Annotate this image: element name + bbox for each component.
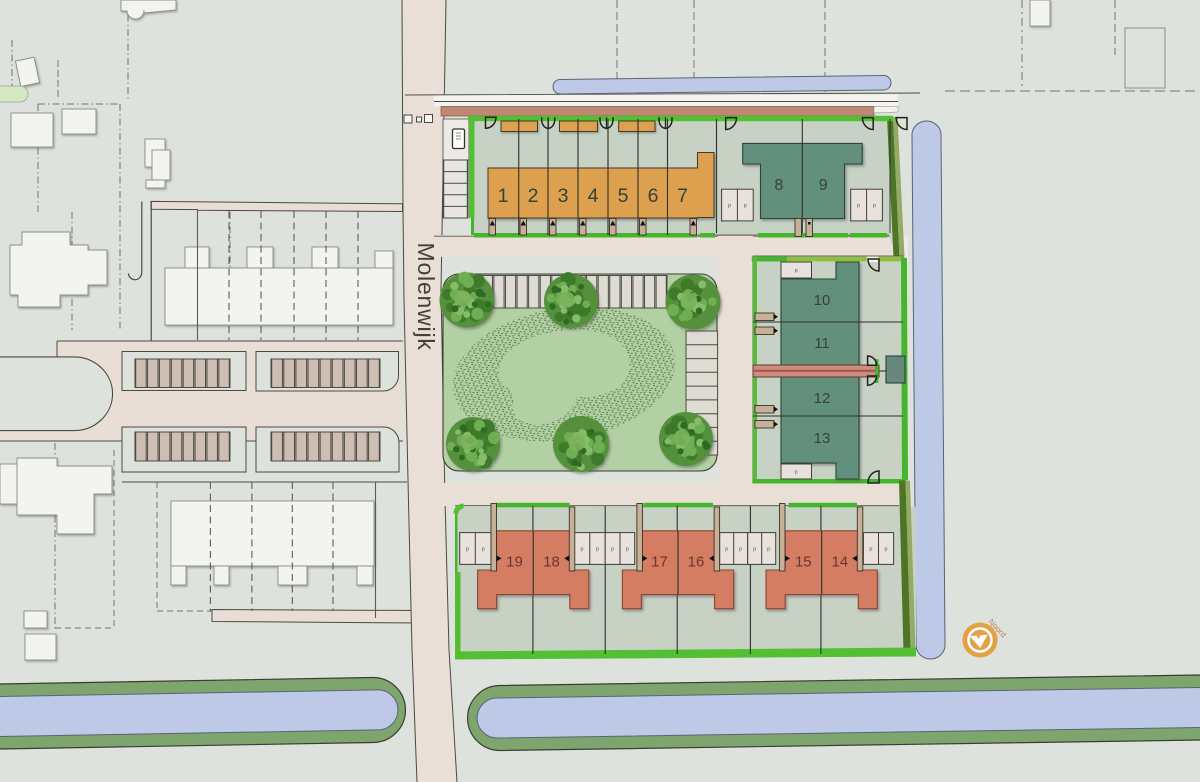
svg-text:6: 6: [648, 185, 659, 207]
svg-text:p: p: [739, 547, 742, 553]
svg-text:12: 12: [814, 390, 831, 407]
svg-text:p: p: [626, 547, 629, 553]
svg-text:3: 3: [558, 185, 569, 207]
svg-text:1: 1: [498, 185, 509, 207]
svg-text:Molenwijk: Molenwijk: [413, 243, 439, 351]
svg-text:p: p: [596, 547, 599, 553]
svg-text:p: p: [580, 547, 583, 553]
svg-text:p: p: [884, 547, 887, 553]
svg-text:p: p: [873, 203, 876, 209]
svg-text:5: 5: [618, 185, 629, 207]
svg-text:2: 2: [528, 185, 539, 207]
svg-text:p: p: [767, 547, 770, 553]
svg-text:p: p: [744, 203, 747, 209]
svg-text:8: 8: [774, 177, 783, 194]
svg-text:p: p: [611, 547, 614, 553]
svg-text:17: 17: [651, 554, 668, 571]
svg-text:p: p: [857, 203, 860, 209]
svg-text:7: 7: [677, 185, 688, 207]
svg-text:15: 15: [795, 554, 812, 571]
svg-text:p: p: [482, 547, 485, 553]
svg-text:p: p: [466, 547, 469, 553]
svg-text:p: p: [795, 470, 798, 476]
svg-text:18: 18: [543, 554, 560, 571]
svg-text:p: p: [869, 547, 872, 553]
svg-text:19: 19: [506, 554, 523, 571]
svg-text:10: 10: [814, 292, 831, 309]
svg-text:11: 11: [814, 335, 830, 352]
svg-text:13: 13: [814, 430, 831, 447]
svg-text:p: p: [728, 203, 731, 209]
svg-text:4: 4: [588, 185, 599, 207]
svg-text:p: p: [753, 547, 756, 553]
svg-text:14: 14: [831, 554, 848, 571]
svg-text:16: 16: [688, 554, 705, 571]
svg-text:p: p: [725, 547, 728, 553]
svg-text:p: p: [795, 268, 798, 274]
svg-text:9: 9: [819, 177, 828, 194]
